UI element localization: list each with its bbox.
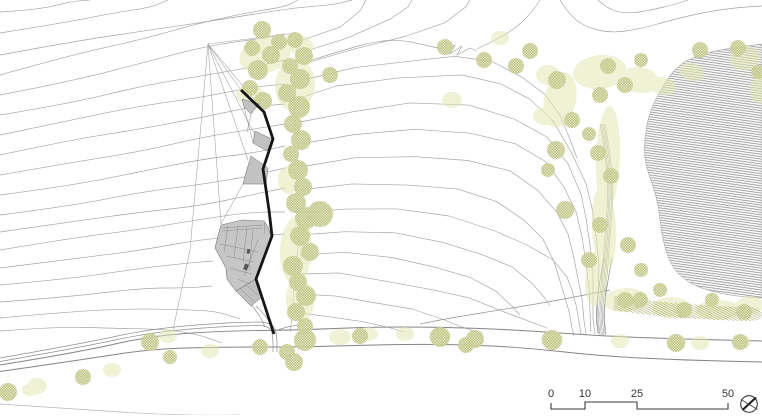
svg-text:25: 25 [631, 388, 643, 400]
svg-text:10: 10 [579, 388, 591, 400]
svg-text:50: 50 [722, 388, 734, 400]
svg-text:0: 0 [548, 388, 554, 400]
